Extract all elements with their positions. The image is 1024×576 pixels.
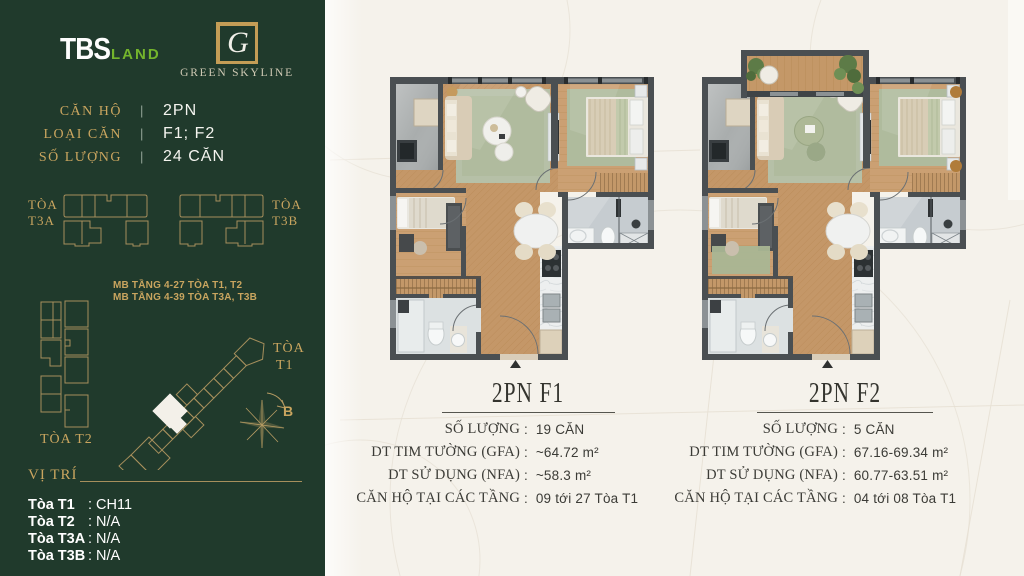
svg-text:T3B: T3B [272,213,298,228]
svg-text:TÒA: TÒA [272,197,302,212]
svg-text:TÒA T2: TÒA T2 [40,430,93,447]
svg-text:MB TẦNG 4-39 TÒA T3A, T3B: MB TẦNG 4-39 TÒA T3A, T3B [113,290,257,303]
svg-text:MB TẦNG 4-27 TÒA T1, T2: MB TẦNG 4-27 TÒA T1, T2 [113,278,242,291]
svg-text:B: B [283,403,293,419]
svg-text:T3A: T3A [28,213,55,228]
svg-text:TÒA: TÒA [28,197,58,212]
svg-text:TÒA: TÒA [273,339,305,356]
svg-text:T1: T1 [276,358,294,373]
